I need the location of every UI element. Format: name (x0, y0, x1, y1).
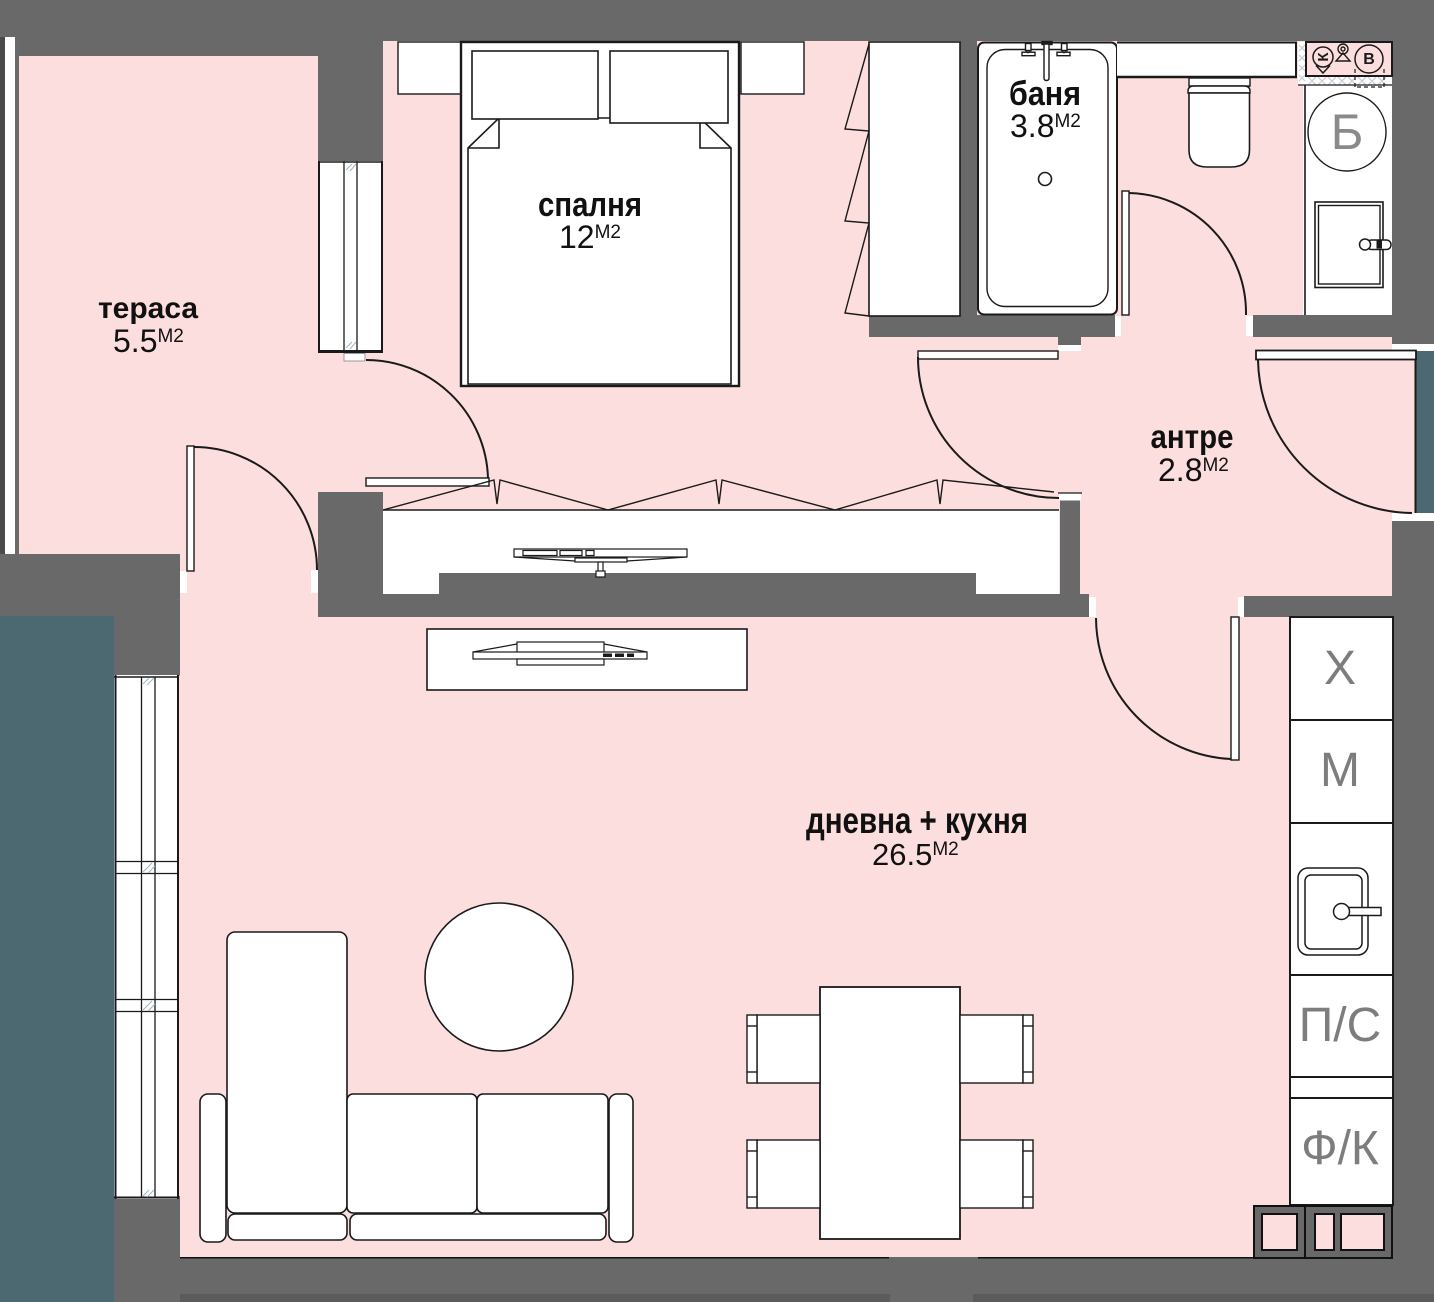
svg-text:Б: Б (1331, 104, 1364, 160)
svg-text:антре: антре (1151, 418, 1234, 455)
svg-text:дневна + кухня: дневна + кухня (806, 800, 1028, 841)
svg-text:В: В (1363, 51, 1375, 68)
svg-text:К: К (1315, 52, 1332, 62)
svg-text:тераса: тераса (98, 292, 198, 325)
svg-text:П/С: П/С (1299, 999, 1382, 1052)
svg-text:М: М (1320, 744, 1360, 797)
svg-text:Ф/К: Ф/К (1301, 1122, 1379, 1175)
svg-text:Х: Х (1324, 642, 1356, 695)
